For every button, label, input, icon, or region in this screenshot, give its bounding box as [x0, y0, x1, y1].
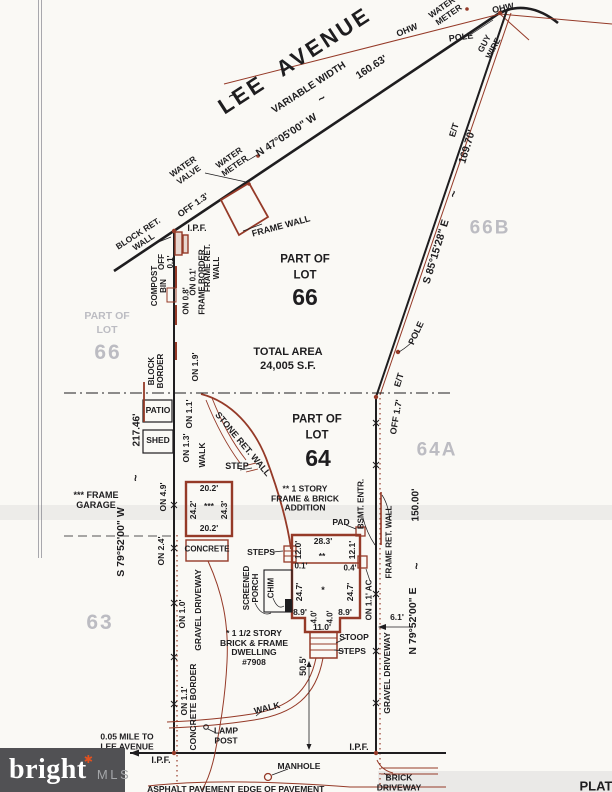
house-dim-12-1: 12.1' — [348, 541, 358, 560]
bearing-n79e: N 79°52'00" E — [408, 587, 420, 654]
et-label-top: E/T — [447, 122, 461, 138]
plat-label: PLAT — [580, 780, 612, 792]
guy-wire-label: GUY WIRE — [475, 32, 502, 61]
off-1-7: OFF 1.7' — [388, 399, 404, 435]
bearing-n47: N 47°05'00" W — [254, 112, 319, 160]
dim-169-70: 169.70' — [457, 129, 478, 166]
bearing-s85: S 85°15'28" E — [422, 218, 453, 285]
water-valve-label: WATER VALVE — [168, 155, 204, 188]
part-of-lot-66-a: PART OF — [280, 254, 330, 267]
ohw-label-2: OHW — [491, 1, 515, 15]
part-of-lot-66-gray-a: PART OF — [84, 311, 129, 323]
brightmls-brand: bright — [9, 756, 87, 784]
part-of-lot-64-b: LOT — [306, 430, 329, 443]
water-meter-top-label: WATER- METER — [427, 0, 465, 28]
pole-label-mid: POLE — [406, 320, 425, 346]
on-1-3: ON 1.3' — [182, 434, 192, 463]
house-dim-8-9-l: 8.9' — [293, 608, 307, 618]
lot-63: 63 — [86, 611, 113, 635]
dim-160-63: 160.63' — [354, 54, 389, 83]
house-dim-28-3: 28.3' — [314, 537, 333, 547]
house-dim-24-7-r: 24.7' — [346, 583, 356, 602]
ipf-bottom-left: I.P.F. — [151, 755, 170, 765]
garage-marker: *** — [204, 502, 214, 512]
compost-bin-label: COMPOST BIN — [151, 266, 169, 306]
tilde-n79e: ~ — [410, 562, 423, 569]
brightmls-suffix: MLS — [97, 767, 131, 782]
patio-label: PATIO — [146, 406, 171, 416]
total-area-b: 24,005 S.F. — [260, 360, 316, 372]
on-1-0: ON 1.0' — [178, 600, 188, 629]
walk-label-lower: WALK — [253, 700, 281, 716]
house-dim-11-0: 11.0' — [313, 623, 331, 633]
frame-ret-wall-label-1: FRAME RET. WALL — [204, 244, 222, 292]
garage-dim-top: 20.2' — [200, 484, 219, 494]
ohw-label-1: OHW — [395, 21, 419, 39]
brightmls-asterisk-icon: ✱ — [84, 755, 93, 766]
bsmt-entr-label: BSMT. ENTR. — [358, 479, 367, 529]
concrete-label: CONCRETE — [185, 546, 230, 555]
on-2-4: ON 2.4' — [157, 537, 167, 566]
shed-label: SHED — [146, 436, 170, 446]
ipf-bottom-right: I.P.F. — [349, 742, 368, 752]
survey-plat-page: LEE AVENUEVARIABLE WIDTH~~N 47°05'00" W1… — [0, 0, 612, 792]
lot-66-black: 66 — [292, 285, 318, 311]
house-dim-24-7-l: 24.7' — [295, 583, 305, 602]
part-of-lot-66-gray-b: LOT — [97, 325, 118, 337]
et-label-mid: E/T — [392, 372, 406, 388]
dim-6-1: 6.1' — [390, 613, 404, 623]
pole-label-top: POLE — [448, 30, 474, 43]
tilde-s79w: ~ — [129, 474, 142, 481]
label-layer: LEE AVENUEVARIABLE WIDTH~~N 47°05'00" W1… — [0, 0, 612, 792]
edge-pavement-label: EDGE OF PAVEMENT — [238, 785, 325, 792]
total-area-a: TOTAL AREA — [253, 346, 322, 358]
part-of-lot-64-a: PART OF — [292, 414, 342, 427]
lot-66b: 66B — [470, 217, 511, 238]
garage-dim-left: 24.2' — [189, 501, 199, 520]
lamp-post-label: LAMP POST — [214, 726, 238, 745]
dim-50-5: 50.5' — [298, 656, 308, 676]
house-dim-0-4: 0.4' — [343, 565, 356, 574]
steps-label-2: STEPS — [338, 647, 366, 657]
screened-porch-label: SCREENED PORCH — [243, 566, 261, 610]
house-marker-2: ** — [319, 552, 326, 562]
house-dim-8-9-r: 8.9' — [338, 608, 352, 618]
dim-150-00: 150.00' — [410, 489, 421, 522]
manhole-label: MANHOLE — [278, 762, 321, 772]
lot-66-gray: 66 — [94, 341, 121, 365]
step-label: STEP — [225, 461, 249, 471]
brick-driveway-label: BRICK DRIVEWAY — [377, 773, 422, 792]
gravel-driveway-label-l: GRAVEL DRIVEWAY — [194, 569, 204, 651]
ipf-top-label: I.P.F. — [187, 223, 206, 233]
frame-ret-wall-label-2: FRAME RET. WALL — [386, 506, 395, 579]
addition-note: ** 1 STORY FRAME & BRICK ADDITION — [271, 485, 339, 514]
on-1-1-top: ON 1.1' — [185, 400, 195, 429]
lot-64a: 64A — [417, 439, 458, 460]
tilde-s85: ~ — [447, 189, 462, 200]
walk-label-upper: WALK — [198, 442, 208, 467]
chim-label: CHIM — [268, 578, 277, 598]
brightmls-logo: bright ✱ MLS — [0, 748, 125, 792]
pad-label: PAD — [332, 518, 349, 528]
asphalt-label: ASPHALT PAVEMENT — [147, 785, 235, 792]
concrete-border-label: CONCRETE BORDER — [189, 664, 199, 751]
block-border-label: BLOCK BORDER — [148, 354, 166, 389]
garage-dim-right: 24.3' — [220, 501, 230, 520]
on-1-9: ON 1.9' — [191, 353, 201, 382]
house-dim-0-1: 0.1' — [294, 563, 307, 572]
bearing-s79w: S 79°52'00" W — [116, 507, 128, 576]
dim-217-46: 217.46' — [131, 414, 142, 447]
part-of-lot-66-b: LOT — [294, 270, 317, 283]
lot-64-black: 64 — [305, 446, 331, 472]
on-1-1-ac: ON 1.1' AC — [366, 580, 375, 621]
steps-label-1: STEPS — [247, 548, 275, 558]
house-marker-1: * — [321, 585, 325, 595]
dwelling-note: * 1 1/2 STORY BRICK & FRAME DWELLING #79… — [220, 629, 288, 667]
house-dim-12-0: 12.0' — [294, 541, 304, 560]
on-4-9: ON 4.9' — [159, 483, 169, 512]
garage-dim-bottom: 20.2' — [200, 524, 219, 534]
off-1-3: OFF 1.3' — [176, 191, 211, 219]
frame-wall-label: FRAME WALL — [251, 213, 312, 238]
stoop-label: STOOP — [339, 633, 369, 643]
gravel-driveway-label-r: GRAVEL DRIVEWAY — [383, 632, 393, 714]
frame-garage-label: *** FRAME GARAGE — [73, 490, 118, 510]
water-meter-label: WATER METER — [214, 146, 250, 179]
tilde-variable-width: ~ — [315, 91, 328, 106]
